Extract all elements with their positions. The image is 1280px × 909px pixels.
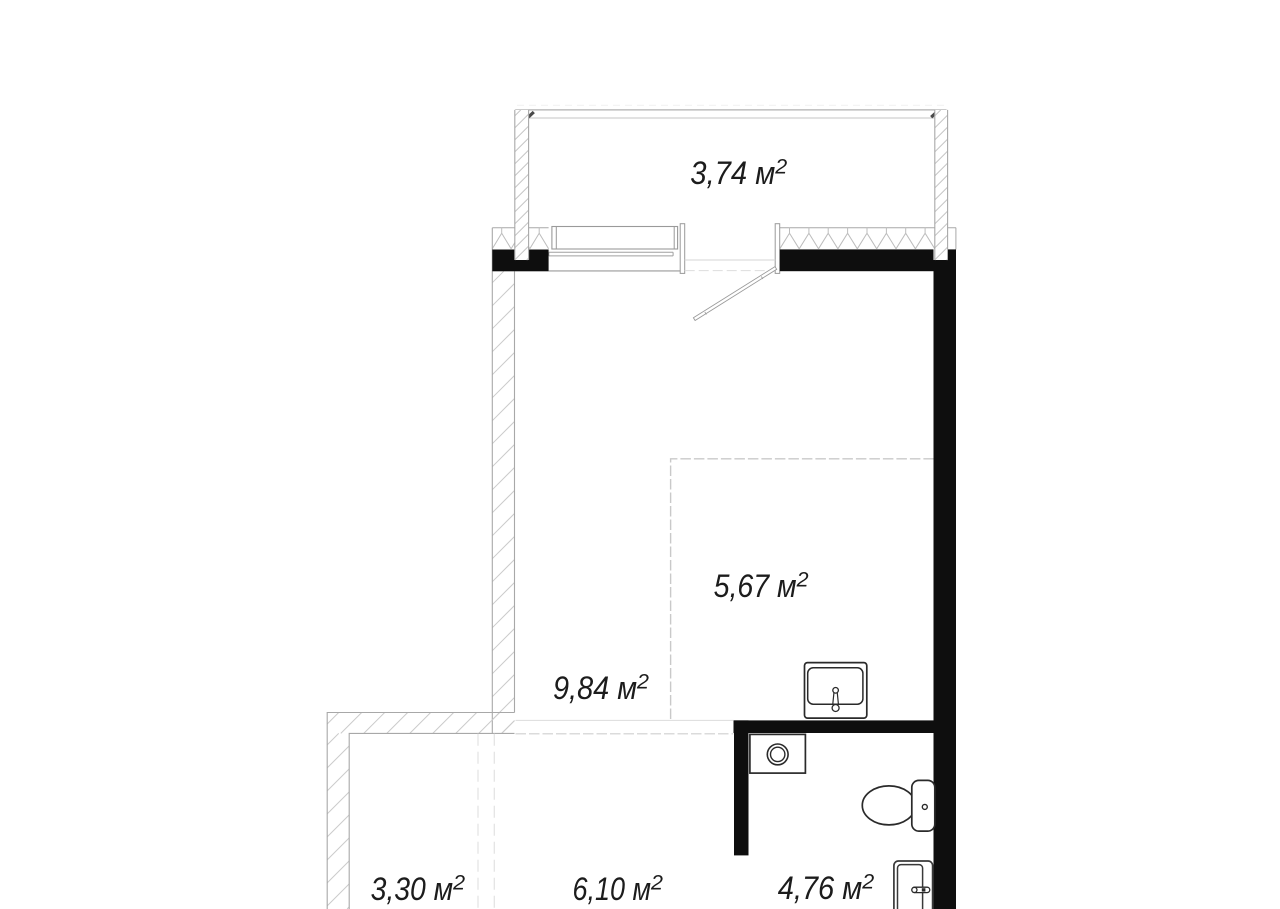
svg-text:3,30 м2: 3,30 м2 [371,870,466,907]
svg-text:5,67 м2: 5,67 м2 [714,568,809,605]
svg-text:3,74 м2: 3,74 м2 [690,155,787,192]
svg-text:6,10 м2: 6,10 м2 [573,870,664,907]
svg-text:9,84 м2: 9,84 м2 [553,670,649,707]
svg-text:4,76 м2: 4,76 м2 [778,870,875,907]
